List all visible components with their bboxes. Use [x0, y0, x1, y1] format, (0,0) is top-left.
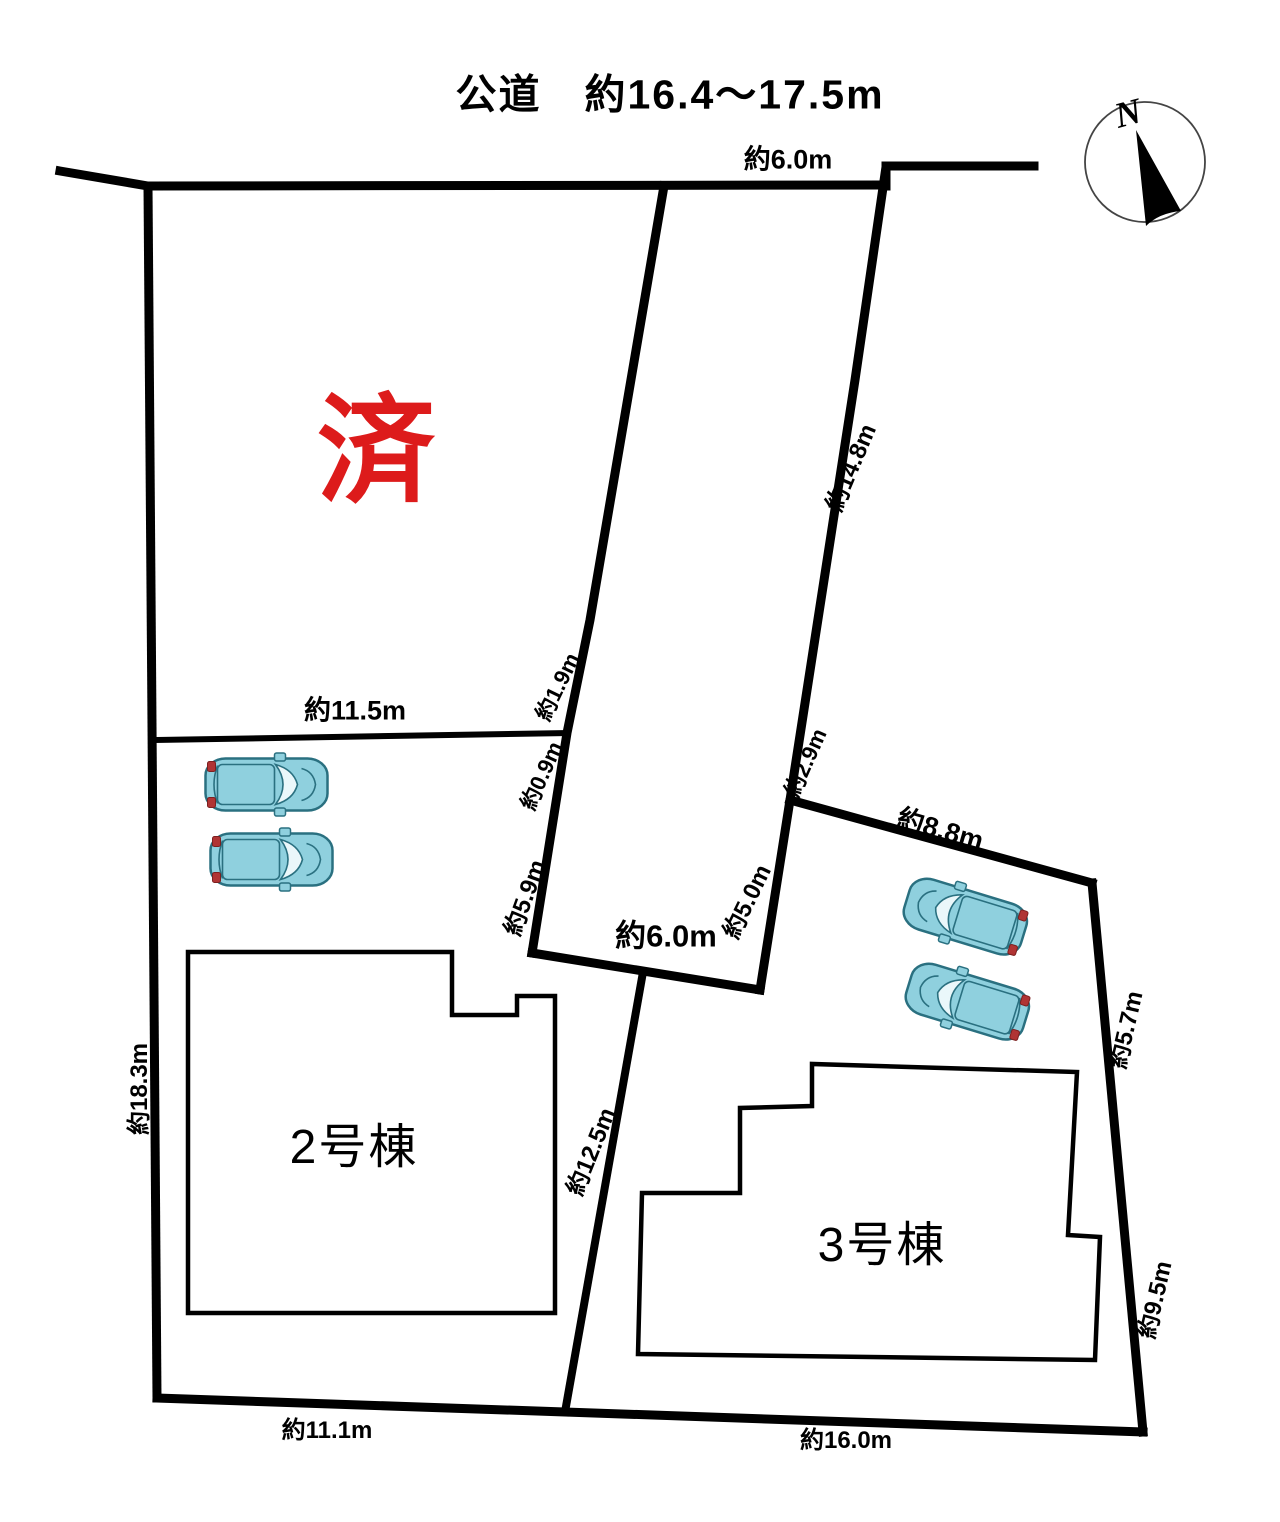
car-lot2-1 — [206, 753, 328, 816]
car-lot3-1 — [898, 869, 1033, 965]
soldlot-lot2-boundary — [157, 733, 567, 740]
west-boundary — [148, 186, 157, 1398]
road-title: 公道 約16.4〜17.5m — [455, 75, 884, 116]
dim-lot1-inner-width: 約11.5m — [304, 698, 406, 725]
lot-layout-diagram: 公道 約16.4〜17.5m N 済 2号棟 3号棟 約6.0m 約11.5m … — [0, 0, 1280, 1522]
car-lot2-2 — [211, 828, 333, 891]
building-3-label: 3号棟 — [818, 1222, 947, 1270]
site-plan-drawing — [0, 0, 1280, 1522]
dim-lot2-bottom: 約11.1m — [282, 1419, 373, 1443]
car-lot3-2 — [900, 954, 1035, 1050]
dim-lot3-bottom: 約16.0m — [800, 1429, 892, 1453]
road-edge-top-right — [886, 166, 1034, 186]
sold-status-mark: 済 — [317, 393, 435, 511]
strip-east-boundary — [760, 167, 886, 990]
compass — [1085, 102, 1205, 226]
east-boundary — [1092, 883, 1143, 1432]
dim-road-top: 約6.0m — [744, 147, 833, 174]
strip-west-boundary — [532, 186, 664, 953]
dim-strip-bottom: 約6.0m — [615, 921, 717, 952]
building-3-outline — [638, 1064, 1100, 1360]
compass-needle-icon — [1136, 130, 1181, 226]
building-2-label: 2号棟 — [290, 1124, 419, 1172]
dim-lot2-left: 約18.3m — [128, 1043, 152, 1135]
